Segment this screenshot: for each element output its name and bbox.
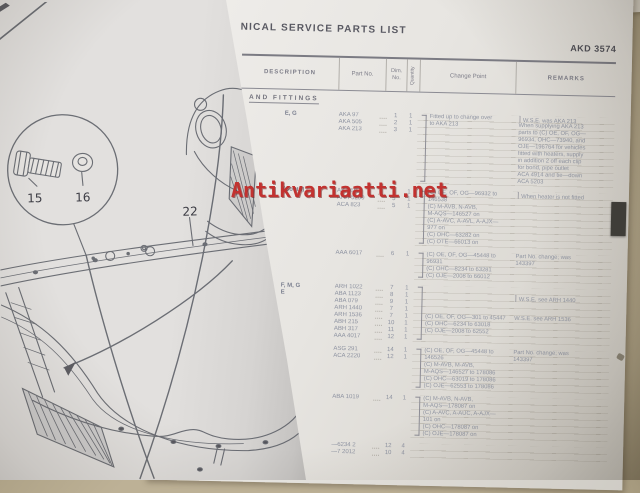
part-lines: AAA 601761 [335, 250, 415, 280]
parts-block: E, GAKA 9711AKA 50521AKA 21331Fitted up … [247, 110, 614, 188]
change-point-cell: Fitted up to change overto AKA 213 [416, 114, 515, 186]
watermark-text: Antikvariaatti.net [231, 178, 448, 202]
remarks-cell-line: 143397 [513, 357, 609, 366]
part-row: ACA 82351 [337, 202, 416, 211]
parts-rows: E, GAKA 9711AKA 50521AKA 21331Fitted up … [241, 110, 615, 468]
change-point-cell-line: (C) OJE—62553 to 178086 [423, 383, 508, 392]
col-dim-no: Dim. No. [386, 59, 407, 91]
remarks-cell-line: 143397 [515, 261, 611, 270]
dotted-leader [379, 132, 386, 133]
remarks-cell: Part No. change; was143397 [511, 254, 612, 284]
quantity: 1 [402, 203, 416, 210]
change-point-cell: (C) OE, OF, OG—45448 to146526(C) M-AVB, … [411, 348, 509, 392]
col-description: DESCRIPTION [241, 56, 339, 90]
part-number: AAA 6017 [335, 250, 375, 258]
change-point-cell-line: (C) OJE—2008 to 66012 [426, 273, 511, 282]
col-quantity-label: Quantity [410, 66, 417, 85]
callout-16: 16 [75, 190, 91, 204]
photo-of-parts-manual: { "watermark": { "text": "Antikvariaatti… [0, 0, 640, 480]
catalog-code: AKD 3574 [240, 36, 616, 55]
index-tab [611, 202, 627, 236]
part-row: ABA 1019141 [332, 394, 411, 403]
part-number: AAA 4017 [334, 333, 374, 341]
dotted-leader [378, 208, 385, 209]
inline-bracket: ] [519, 116, 521, 124]
part-number: ACA 823 [337, 202, 377, 210]
dotted-leader [372, 455, 379, 456]
change-point-cell: (C) M-AVB, N-AVB,M-AQS—178087 on(C) A-AV… [410, 396, 508, 440]
part-lines: AKA 9711AKA 50521AKA 21331 [337, 112, 418, 184]
change-point-cell [410, 444, 507, 460]
part-row: AAA 601761 [335, 250, 414, 259]
col-part-no: Part No. [339, 58, 387, 91]
page-title: NICAL SERVICE PARTS LIST [241, 22, 407, 37]
part-lines: —6234 2124—7 2012104 [331, 442, 410, 458]
part-number: ABA 1019 [332, 394, 372, 402]
group-bracket [416, 349, 422, 388]
dotted-leader [375, 318, 382, 319]
dotted-leader [375, 339, 382, 340]
remarks-cell: ]When heater is not fitted [512, 192, 613, 250]
change-point-cell-line: (C) OJE—2008 to 62552 [425, 328, 510, 337]
callout-15: 15 [27, 191, 43, 205]
quantity: 4 [396, 450, 410, 457]
part-lines: ARH 102271ABA 112381ABA 07991ARH 144071A… [334, 284, 414, 342]
dotted-leader [375, 325, 382, 326]
part-number: —7 2012 [331, 449, 371, 457]
part-row: AKA 21331 [338, 126, 417, 135]
part-row: —7 2012104 [331, 449, 410, 458]
change-point-cell-line: to AKA 213 [429, 121, 514, 130]
remarks-cell [507, 446, 607, 462]
dim-number: 3 [387, 127, 403, 134]
remarks-cell: ]W.S.E. see ARH 1440W.S.E. see ARH 1536 [510, 288, 611, 346]
remarks-cell-line: ]When heater is not fitted [517, 192, 613, 201]
dotted-leader [375, 304, 382, 305]
col-change-point: Change Point [420, 60, 517, 94]
remarks-cell-line: ACA 5203 [517, 179, 613, 188]
part-number: AKA 213 [338, 126, 378, 134]
callout-22: 22 [182, 204, 198, 218]
change-point-cell-line: (C) OJE—178087 on [422, 431, 507, 440]
group-label: E, G [247, 110, 339, 182]
dotted-leader [380, 118, 387, 119]
dotted-leader [377, 256, 384, 257]
dotted-leader [373, 400, 380, 401]
remarks-cell-line: W.S.E. see ARH 1536 [514, 316, 610, 325]
dim-number: 12 [382, 354, 398, 361]
dotted-leader [379, 125, 386, 126]
dotted-leader [375, 311, 382, 312]
parts-block: ASG 291141ACA 2220121(C) OE, OF, OG—4544… [243, 344, 610, 394]
dim-number: 6 [384, 251, 400, 258]
col-quantity: Quantity [407, 59, 421, 91]
group-bracket [417, 287, 423, 340]
group-bracket [420, 115, 427, 182]
quantity: 1 [398, 354, 412, 361]
dim-number: 14 [381, 395, 397, 402]
remarks-cell: Part No. change; was143397 [508, 350, 609, 394]
dotted-leader [374, 352, 381, 353]
inline-bracket: ] [515, 295, 517, 303]
parts-block: F, M, G EARH 102271ABA 112381ABA 07991AR… [244, 282, 611, 346]
group-bracket [414, 397, 420, 436]
part-row: AAA 4017121 [334, 333, 413, 342]
quantity: 1 [399, 334, 413, 341]
change-point-cell: (C) OE, OF, OG—45448 to96931(C) OHC—8234… [414, 252, 512, 282]
part-lines: ASG 291141ACA 2220121 [333, 346, 413, 390]
table-header-row: DESCRIPTION Part No. Dim. No. Quantity C… [241, 54, 616, 97]
quantity: 1 [397, 395, 411, 402]
parts-block: AAA 601761(C) OE, OF, OG—45448 to96931(C… [245, 248, 612, 284]
dotted-leader [372, 448, 379, 449]
dim-number: 12 [383, 334, 399, 341]
remarks-cell: ]W.S.E. was AKA 213When supplying AKA 21… [513, 116, 615, 188]
change-point-cell: (C) OE, OF, OG—301 to 45447(C) OHC—6234 … [413, 286, 511, 344]
dotted-leader [376, 290, 383, 291]
dotted-leader [375, 332, 382, 333]
remarks-cell [507, 398, 608, 442]
change-point-cell-line: (C) OTE—66013 on [427, 239, 512, 248]
part-row: ACA 2220121 [333, 353, 412, 362]
group-bracket [418, 253, 424, 278]
dim-number: 10 [380, 450, 396, 457]
dotted-leader [374, 359, 381, 360]
quantity: 1 [403, 127, 417, 134]
dim-number: 5 [386, 203, 402, 210]
inline-bracket: ] [517, 192, 519, 200]
part-lines: ABA 1019141 [331, 394, 411, 438]
dotted-leader [376, 297, 383, 298]
section-heading: AND FITTINGS [249, 94, 319, 105]
part-number: ACA 2220 [333, 353, 373, 361]
col-remarks: REMARKS [517, 62, 616, 96]
quantity: 1 [400, 251, 414, 258]
